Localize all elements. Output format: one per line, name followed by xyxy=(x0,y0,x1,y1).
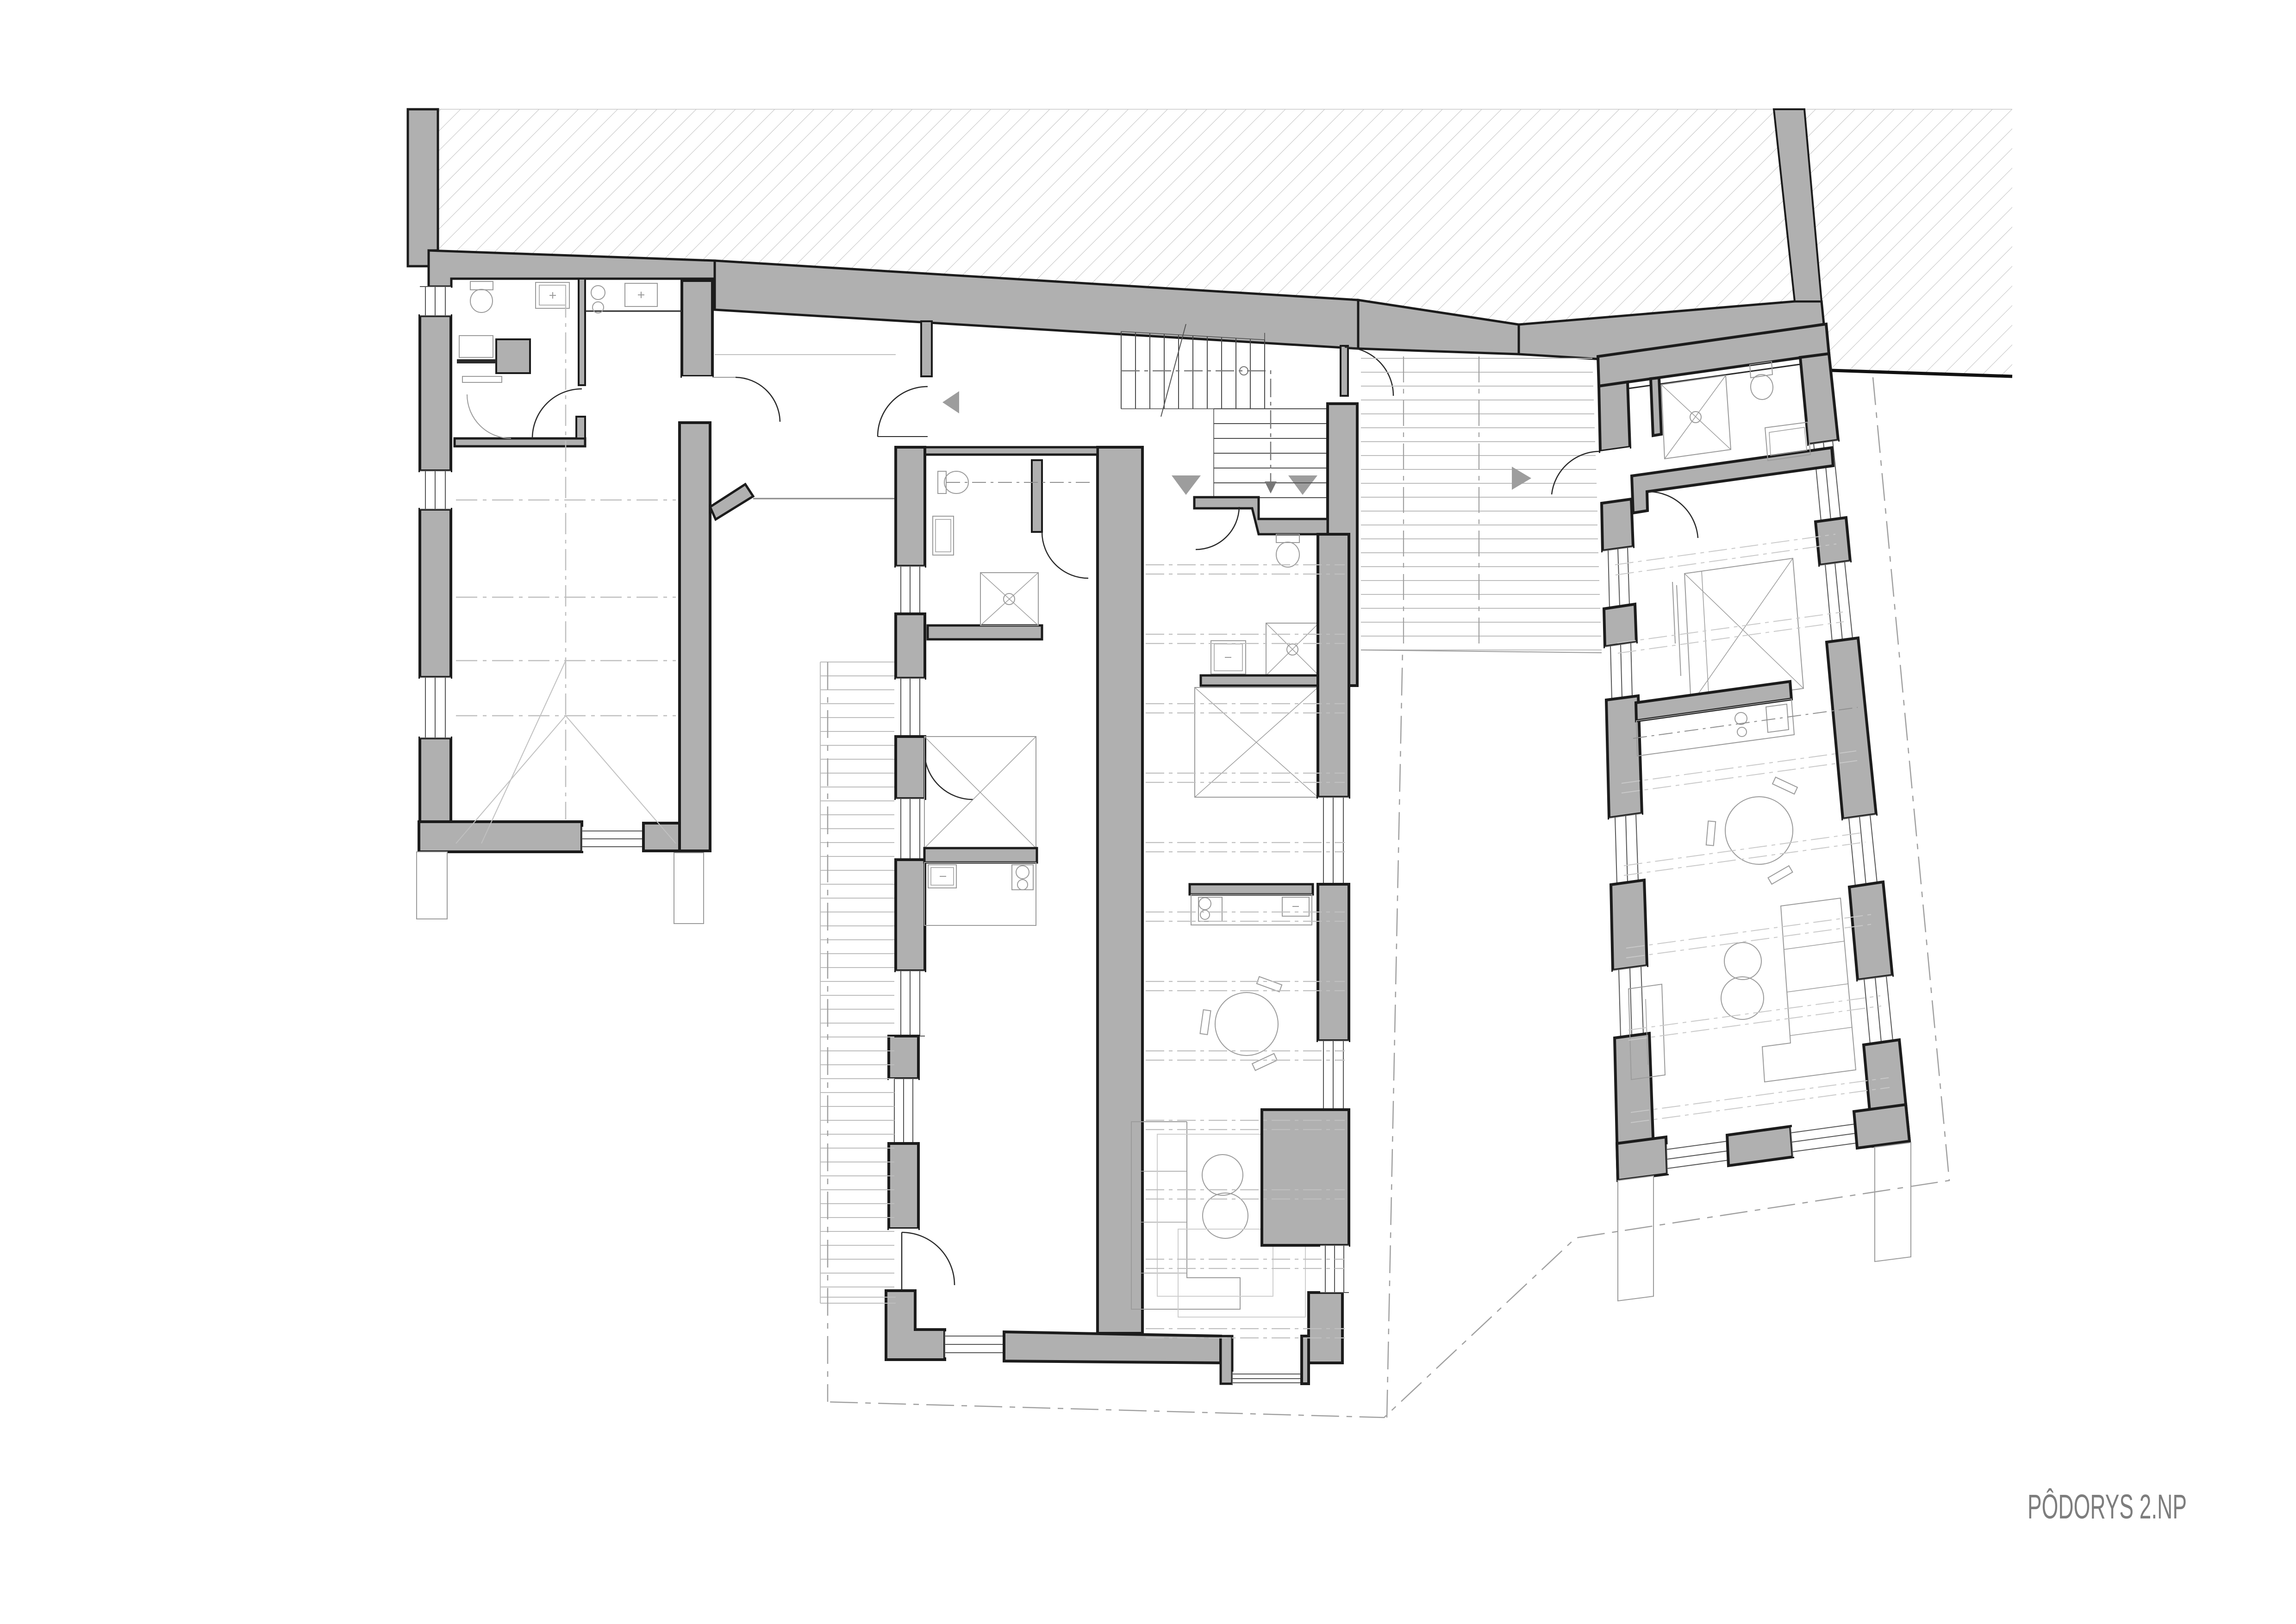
svg-text:PÔDORYS 2.NP: PÔDORYS 2.NP xyxy=(2028,1487,2187,1526)
